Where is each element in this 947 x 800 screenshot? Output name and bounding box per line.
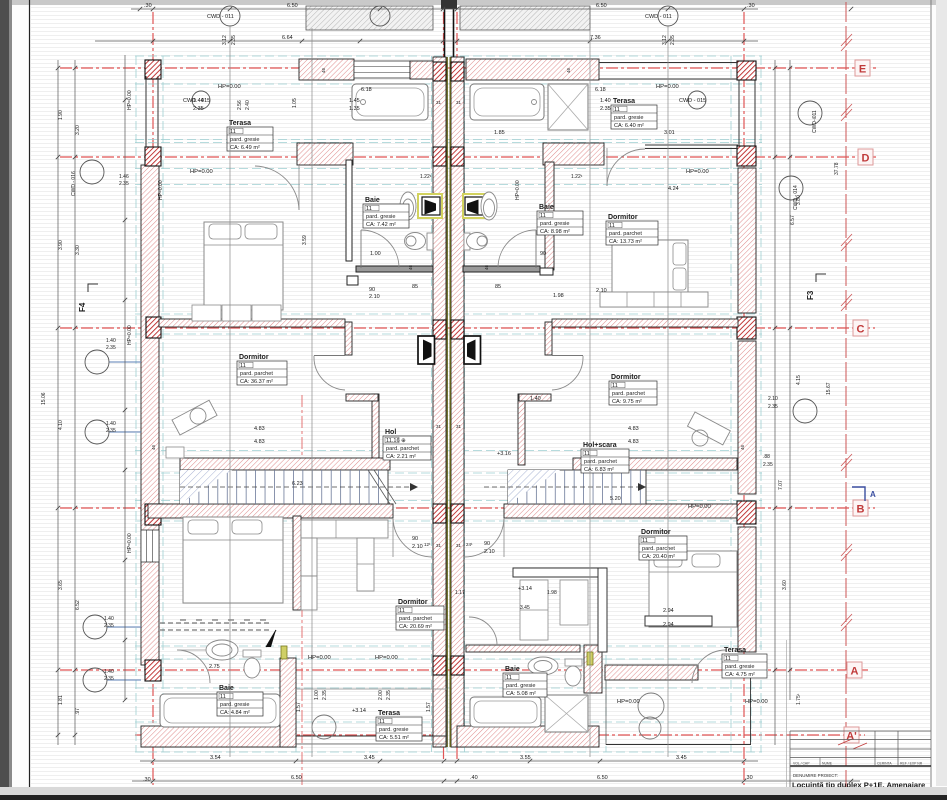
svg-text:Baie: Baie [505, 666, 520, 673]
svg-text:3.30: 3.30 [75, 245, 81, 255]
svg-text:1.00: 1.00 [370, 251, 381, 257]
svg-text:90: 90 [484, 541, 490, 547]
svg-text:A: A [851, 666, 859, 678]
svg-text:CA: 6.49 m²: CA: 6.49 m² [230, 145, 260, 151]
svg-text:HP=0.00: HP=0.00 [127, 533, 133, 553]
svg-text:Terasa: Terasa [724, 647, 746, 654]
svg-text:HP=0.00: HP=0.00 [375, 655, 398, 661]
svg-text:2.35: 2.35 [768, 404, 778, 410]
svg-text:2.56: 2.56 [237, 100, 243, 110]
svg-text:pard. parchet: pard. parchet [609, 231, 642, 237]
svg-text:1.98: 1.98 [553, 293, 564, 299]
svg-text:2.35: 2.35 [106, 345, 116, 351]
svg-text:2.94: 2.94 [663, 608, 674, 614]
svg-text:1.40: 1.40 [600, 98, 611, 104]
svg-text:11: 11 [584, 451, 590, 457]
svg-text:2.35: 2.35 [763, 462, 773, 468]
svg-text:2.40: 2.40 [245, 100, 251, 110]
svg-text:1.44: 1.44 [193, 98, 204, 104]
svg-text:1.75¹: 1.75¹ [796, 693, 802, 705]
svg-text:6.57: 6.57 [790, 215, 796, 225]
svg-text:2.35: 2.35 [322, 690, 328, 700]
svg-text:pard. parchet: pard. parchet [584, 459, 617, 465]
svg-text:1.40: 1.40 [530, 396, 541, 402]
svg-text:HP=0.00: HP=0.00 [745, 699, 768, 705]
svg-text:CWD - 016: CWD - 016 [71, 171, 77, 196]
svg-text:7.07: 7.07 [778, 480, 784, 490]
svg-text:2.35: 2.35 [104, 623, 114, 629]
svg-text:11: 11 [240, 363, 246, 369]
svg-text:CWD - 011: CWD - 011 [207, 14, 234, 20]
svg-text:11: 11 [540, 213, 546, 219]
svg-text:31: 31 [436, 100, 442, 105]
svg-text:pard. parchet: pard. parchet [386, 446, 419, 452]
svg-text:90: 90 [412, 536, 418, 542]
svg-text:3.55: 3.55 [520, 755, 531, 761]
svg-text:31: 31 [456, 100, 462, 105]
svg-text:3.45: 3.45 [520, 605, 530, 611]
svg-text:+3.16: +3.16 [497, 451, 511, 457]
svg-text:3.12: 3.12 [662, 35, 668, 45]
svg-text:CA: 6.40 m²: CA: 6.40 m² [614, 123, 644, 129]
svg-text:Baie: Baie [539, 204, 554, 211]
svg-text:46: 46 [408, 264, 413, 270]
svg-text:CA: 20.69 m²: CA: 20.69 m² [399, 624, 432, 630]
svg-text:CA: 7.42 m²: CA: 7.42 m² [366, 222, 396, 228]
svg-text:11: 11 [399, 608, 405, 614]
svg-text:2.35: 2.35 [600, 106, 611, 112]
svg-text:3.01: 3.01 [664, 130, 675, 136]
svg-text:12¹: 12¹ [424, 542, 431, 547]
svg-text:1.45: 1.45 [349, 98, 360, 104]
svg-text:CA: 36.37 m²: CA: 36.37 m² [240, 379, 273, 385]
svg-text:1.98: 1.98 [547, 590, 557, 596]
svg-text:6.50: 6.50 [291, 775, 302, 781]
svg-text:Dormitor: Dormitor [398, 599, 428, 606]
svg-text:NUME: NUME [822, 762, 833, 766]
svg-text:HP=0.00: HP=0.00 [127, 325, 133, 345]
svg-text:11: 11 [642, 538, 648, 544]
svg-text:3.20: 3.20 [75, 125, 81, 135]
svg-text:15.06: 15.06 [41, 392, 47, 405]
svg-text:Dormitor: Dormitor [239, 354, 269, 361]
svg-text:1.81: 1.81 [58, 695, 64, 705]
svg-text:11: 11 [609, 223, 615, 229]
svg-text:1.46: 1.46 [119, 174, 129, 180]
svg-text:15.67: 15.67 [826, 382, 832, 395]
svg-text:B: B [857, 504, 865, 516]
svg-text:CA: 20.40 m²: CA: 20.40 m² [642, 554, 675, 560]
svg-text:pard. parchet: pard. parchet [240, 371, 273, 377]
svg-text:90: 90 [369, 287, 375, 293]
svg-text:.30: .30 [144, 3, 152, 9]
svg-text:85: 85 [495, 284, 501, 290]
svg-text:.97: .97 [75, 708, 81, 715]
svg-text:2.35: 2.35 [119, 181, 129, 187]
svg-text:HP=0.00: HP=0.00 [688, 504, 711, 510]
svg-text:3.80: 3.80 [796, 195, 802, 205]
svg-text:.40: .40 [470, 775, 478, 781]
svg-text:Dormitor: Dormitor [611, 374, 641, 381]
svg-text:46: 46 [321, 67, 326, 73]
svg-text:1.40: 1.40 [104, 669, 114, 675]
svg-text:1.35: 1.35 [349, 106, 360, 112]
svg-text:CA: 5.08 m²: CA: 5.08 m² [506, 691, 536, 697]
svg-text:CERINTA: CERINTA [877, 762, 892, 766]
svg-text:4.15: 4.15 [796, 375, 802, 385]
svg-text:HP=0.00: HP=0.00 [515, 180, 521, 200]
svg-text:31: 31 [436, 543, 442, 548]
svg-text:F3: F3 [806, 290, 815, 300]
svg-text:2.10: 2.10 [412, 544, 423, 550]
svg-text:1.22¹: 1.22¹ [571, 174, 583, 180]
svg-text:HP=0.00: HP=0.00 [656, 84, 679, 90]
svg-text:Terasa: Terasa [613, 98, 635, 105]
svg-text:HP=0.00: HP=0.00 [158, 180, 164, 200]
svg-text:46: 46 [151, 444, 156, 450]
svg-text:Hol+scara: Hol+scara [583, 442, 617, 449]
svg-text:11: 11 [614, 107, 620, 113]
svg-text:pard. gresie: pard. gresie [614, 115, 644, 121]
svg-text:2.35: 2.35 [193, 106, 204, 112]
svg-text:3.54: 3.54 [210, 755, 221, 761]
svg-text:1.40: 1.40 [106, 338, 116, 344]
svg-text:3.45: 3.45 [676, 755, 687, 761]
svg-text:3.90: 3.90 [58, 240, 64, 250]
svg-text:6.18: 6.18 [595, 87, 606, 93]
svg-text:2.35: 2.35 [670, 35, 676, 45]
svg-text:pard. parchet: pard. parchet [612, 391, 645, 397]
svg-text:31: 31 [456, 543, 462, 548]
svg-text:HP=0.00: HP=0.00 [617, 699, 640, 705]
svg-text:37.78: 37.78 [834, 162, 840, 175]
svg-text:.30: .30 [745, 775, 753, 781]
svg-text:90: 90 [540, 251, 546, 257]
svg-text:Terasa: Terasa [229, 120, 251, 127]
svg-text:pard. gresie: pard. gresie [379, 727, 409, 733]
svg-text:CA: 4.84 m²: CA: 4.84 m² [220, 710, 250, 716]
svg-text:6.50: 6.50 [596, 3, 607, 9]
svg-text:A: A [870, 490, 876, 499]
svg-text:2.35: 2.35 [386, 690, 392, 700]
svg-text:CWD-i011: CWD-i011 [812, 110, 818, 133]
svg-text:CA: 13.73 m²: CA: 13.73 m² [609, 239, 642, 245]
svg-text:4.83: 4.83 [254, 426, 265, 432]
svg-text:6.18: 6.18 [361, 87, 372, 93]
svg-text:CWD - 015: CWD - 015 [679, 98, 706, 104]
svg-text:2.35: 2.35 [104, 676, 114, 682]
svg-text:85: 85 [412, 284, 418, 290]
svg-text:pard. parchet: pard. parchet [642, 546, 675, 552]
svg-text:Hol: Hol [385, 429, 396, 436]
svg-text:VOL / CAP: VOL / CAP [793, 762, 810, 766]
svg-text:11: 11 [230, 129, 236, 135]
svg-text:Terasa: Terasa [378, 710, 400, 717]
svg-text:11: 11 [379, 719, 385, 725]
svg-text:6.50: 6.50 [597, 775, 608, 781]
svg-text:6.64: 6.64 [282, 35, 293, 41]
svg-text:CA: 8.98 m²: CA: 8.98 m² [540, 229, 570, 235]
svg-text:CWD - 011: CWD - 011 [645, 14, 672, 20]
svg-text:Baie: Baie [219, 685, 234, 692]
svg-text:F4: F4 [78, 302, 87, 312]
svg-text:pard. parchet: pard. parchet [399, 616, 432, 622]
svg-text:4.24: 4.24 [668, 186, 679, 192]
svg-text:pard. gresie: pard. gresie [230, 137, 260, 143]
svg-text:pard. gresie: pard. gresie [506, 683, 536, 689]
svg-text:CA: 9.75 m²: CA: 9.75 m² [612, 399, 642, 405]
svg-text:4.83: 4.83 [254, 439, 265, 445]
svg-text:.88: .88 [763, 454, 770, 460]
svg-text:CA: 5.51 m²: CA: 5.51 m² [379, 735, 409, 741]
svg-text:1.17: 1.17 [455, 590, 465, 596]
svg-text:pard. gresie: pard. gresie [725, 664, 755, 670]
svg-text:.30: .30 [143, 777, 151, 783]
svg-text:Dormitor: Dormitor [608, 214, 638, 221]
svg-text:HP=0.00: HP=0.00 [127, 90, 133, 110]
svg-text:1.40: 1.40 [106, 421, 116, 427]
svg-text:pard. gresie: pard. gresie [220, 702, 250, 708]
svg-text:2.75: 2.75 [209, 664, 220, 670]
svg-text:1.05: 1.05 [292, 98, 298, 108]
svg-text:Baie: Baie [365, 197, 380, 204]
svg-text:1.57: 1.57 [426, 702, 432, 712]
svg-text:7.36: 7.36 [590, 35, 601, 41]
svg-text:3.60: 3.60 [782, 580, 788, 590]
svg-text:+3.14: +3.14 [352, 708, 366, 714]
svg-text:C: C [857, 324, 865, 336]
svg-text:2.94: 2.94 [663, 622, 674, 628]
svg-text:24¹: 24¹ [466, 542, 473, 547]
svg-text:HP=0.00: HP=0.00 [218, 84, 241, 90]
svg-text:11.16 ⊕: 11.16 ⊕ [386, 438, 406, 444]
svg-text:6.23: 6.23 [292, 481, 303, 487]
svg-text:3.65: 3.65 [58, 580, 64, 590]
svg-text:D: D [862, 153, 870, 165]
svg-text:1.40: 1.40 [104, 616, 114, 622]
svg-text:11: 11 [506, 675, 512, 681]
svg-text:46: 46 [566, 67, 571, 73]
svg-text:HP=0.00: HP=0.00 [190, 169, 213, 175]
svg-text:46: 46 [484, 264, 489, 270]
svg-text:CA: 2.21 m²: CA: 2.21 m² [386, 454, 416, 460]
svg-text:1.90: 1.90 [58, 110, 64, 120]
svg-text:1.22¹: 1.22¹ [420, 174, 432, 180]
svg-text:11: 11 [220, 694, 226, 700]
svg-text:CA: 4.75 m²: CA: 4.75 m² [725, 672, 755, 678]
svg-text:HP=0.00: HP=0.00 [308, 655, 331, 661]
svg-text:4.83: 4.83 [628, 439, 639, 445]
svg-text:2.10: 2.10 [369, 294, 380, 300]
svg-text:31: 31 [436, 424, 442, 429]
svg-text:3.45: 3.45 [364, 755, 375, 761]
svg-text:31: 31 [456, 424, 462, 429]
svg-text:2.10: 2.10 [768, 396, 778, 402]
svg-text:11: 11 [725, 656, 731, 662]
svg-text:+3.14: +3.14 [518, 586, 532, 592]
svg-text:1.00: 1.00 [314, 690, 320, 700]
svg-text:1.57: 1.57 [296, 702, 302, 712]
svg-text:2.35: 2.35 [231, 35, 237, 45]
svg-text:5.20: 5.20 [610, 496, 621, 502]
svg-text:3.59: 3.59 [302, 235, 308, 245]
svg-text:2.10: 2.10 [484, 549, 495, 555]
svg-text:pard. gresie: pard. gresie [366, 214, 396, 220]
svg-text:CA: 6.83 m²: CA: 6.83 m² [584, 467, 614, 473]
svg-text:46: 46 [740, 444, 745, 450]
svg-text:4.10: 4.10 [58, 420, 64, 430]
svg-text:2.10: 2.10 [596, 288, 607, 294]
svg-text:.30: .30 [747, 3, 755, 9]
svg-text:4.83: 4.83 [628, 426, 639, 432]
svg-text:2.00: 2.00 [378, 690, 384, 700]
svg-text:E: E [859, 64, 866, 76]
svg-text:HP=0.00: HP=0.00 [686, 169, 709, 175]
svg-text:REF / EXP NR: REF / EXP NR [900, 762, 923, 766]
svg-text:pard. gresie: pard. gresie [540, 221, 570, 227]
svg-text:Dormitor: Dormitor [641, 529, 671, 536]
svg-text:6.50: 6.50 [287, 3, 298, 9]
svg-text:11: 11 [366, 206, 372, 212]
svg-text:3.12: 3.12 [222, 35, 228, 45]
svg-text:DENUMIRE PROIECT:: DENUMIRE PROIECT: [793, 773, 838, 778]
svg-text:1.85: 1.85 [494, 130, 505, 136]
svg-text:6.52: 6.52 [75, 600, 81, 610]
svg-text:2.35: 2.35 [106, 428, 116, 434]
svg-text:11: 11 [612, 383, 618, 389]
